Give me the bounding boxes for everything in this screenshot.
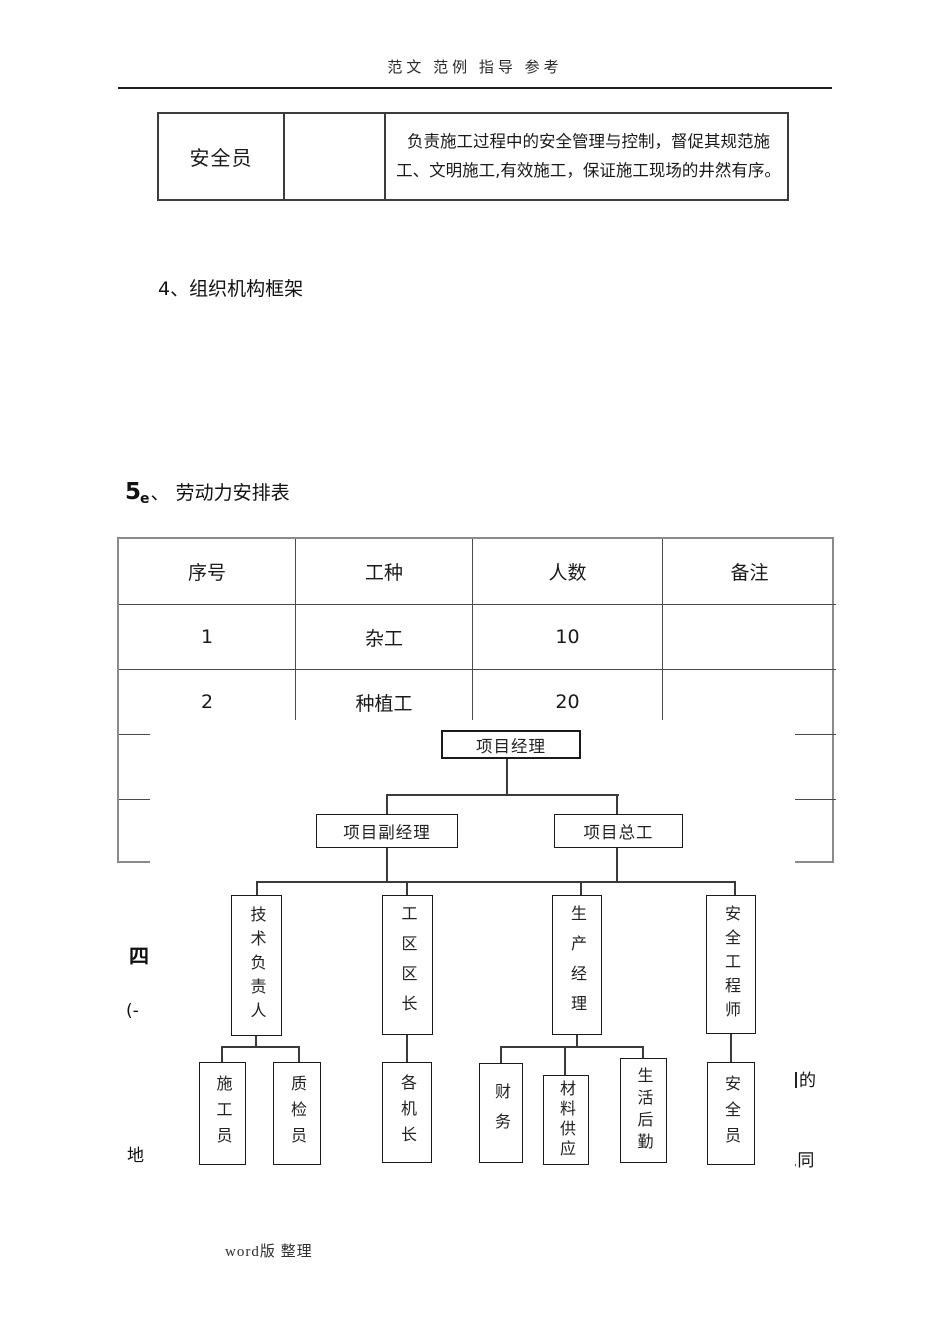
connector-line	[386, 848, 388, 883]
org-box-project-manager: 项目经理	[441, 730, 581, 759]
connector-line	[730, 1034, 732, 1062]
labor-header-remark: 备注	[662, 539, 836, 604]
connector-line	[500, 1046, 502, 1063]
org-box-logistics: 生活后勤	[620, 1058, 667, 1163]
connector-line	[406, 881, 408, 895]
org-box-zone-chief: 工区区长	[382, 895, 433, 1035]
header-watermark: 范文 范例 指导 参考	[0, 56, 950, 77]
labor-header-count: 人数	[472, 539, 662, 604]
labor-header-trade: 工种	[295, 539, 472, 604]
org-box-machine-captains: 各机长	[382, 1062, 432, 1163]
connector-line	[506, 759, 508, 796]
duty-description-cell: 负责施工过程中的安全管理与控制，督促其规范施工、文明施工,有效施工，保证施工现场…	[384, 114, 791, 199]
duty-empty-cell	[283, 114, 384, 199]
connector-line	[500, 1046, 644, 1048]
org-box-constructor: 施工员	[199, 1062, 246, 1165]
connector-line	[734, 881, 736, 895]
connector-line	[406, 1035, 408, 1062]
org-box-finance: 财务	[479, 1063, 523, 1163]
org-box-production-manager: 生产经理	[552, 895, 602, 1035]
section-4-heading: 4、组织机构框架	[158, 274, 303, 301]
document-page: 范文 范例 指导 参考 安全员 负责施工过程中的安全管理与控制，督促其规范施工、…	[0, 0, 950, 1344]
connector-line	[256, 881, 736, 883]
connector-line	[386, 794, 619, 796]
connector-line	[221, 1046, 223, 1062]
org-box-safety-officer: 安全员	[707, 1062, 755, 1165]
labor-cell: 10	[472, 604, 662, 669]
org-box-chief-project-engineer: 项目总工	[554, 814, 683, 848]
clipped-character-stroke	[795, 1072, 797, 1088]
section-4-title: 组织机构框架	[189, 278, 303, 300]
labor-cell	[662, 604, 836, 669]
labor-cell: 1	[119, 604, 295, 669]
section-5-title: 劳动力安排表	[176, 482, 290, 504]
connector-line	[564, 1046, 566, 1075]
connector-line	[298, 1046, 300, 1062]
margin-fragment-right-top: 的	[795, 1066, 816, 1091]
section-5-heading: 5e、 劳动力安排表	[125, 478, 290, 505]
labor-header-seq: 序号	[119, 539, 295, 604]
footer-text: word版 整理	[225, 1240, 313, 1261]
org-box-material-supply: 材料供应	[543, 1075, 589, 1165]
margin-fragment-left-bottom: 地	[127, 1141, 144, 1166]
margin-fragment-left-top: 四	[129, 940, 149, 969]
labor-cell: 杂工	[295, 604, 472, 669]
org-box-quality-inspector: 质检员	[273, 1062, 321, 1165]
connector-line	[221, 1046, 300, 1048]
margin-fragment-left-mid: (-	[126, 1001, 139, 1021]
margin-fragment-right-bottom: ,同	[792, 1146, 814, 1171]
header-rule	[118, 87, 832, 89]
section-5-anchor-mark: e	[140, 491, 150, 507]
duty-table: 安全员 负责施工过程中的安全管理与控制，督促其规范施工、文明施工,有效施工，保证…	[157, 112, 789, 201]
org-box-technical-lead: 技术负责人	[231, 895, 282, 1036]
duty-role-cell: 安全员	[159, 114, 283, 199]
section-5-separator: 、	[151, 482, 170, 504]
section-4-number: 4、	[158, 278, 189, 300]
connector-line	[256, 881, 258, 895]
connector-line	[386, 794, 388, 814]
section-5-number: 5	[125, 479, 141, 505]
connector-line	[580, 881, 582, 895]
connector-line	[642, 1046, 644, 1058]
org-box-safety-engineer: 安全工程师	[706, 895, 756, 1034]
org-box-deputy-project-manager: 项目副经理	[316, 814, 458, 848]
connector-line	[616, 794, 618, 814]
connector-line	[616, 848, 618, 883]
